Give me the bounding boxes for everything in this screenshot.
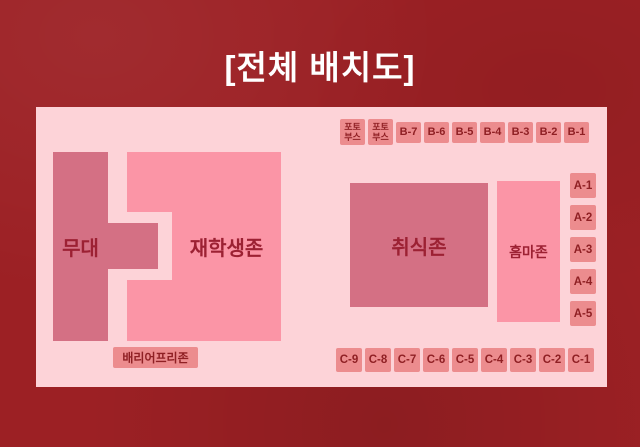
seat-a-3: A-3 bbox=[570, 237, 596, 262]
seat-c-1: C-1 bbox=[568, 348, 594, 372]
seat-b-5: B-5 bbox=[452, 122, 477, 143]
seat-c-4: C-4 bbox=[481, 348, 507, 372]
seat-b-4: B-4 bbox=[480, 122, 505, 143]
seat-a-4: A-4 bbox=[570, 269, 596, 294]
seat-b-2: B-2 bbox=[536, 122, 561, 143]
zone-homma: 홈마존 bbox=[497, 181, 560, 322]
a-seat-column: A-1 A-2 A-3 A-4 A-5 bbox=[570, 173, 596, 326]
photo-booth-1-label-top: 포토 bbox=[344, 122, 361, 132]
seat-a-1: A-1 bbox=[570, 173, 596, 198]
seat-b-3: B-3 bbox=[508, 122, 533, 143]
photo-booth-2: 포토 부스 bbox=[368, 119, 393, 145]
zone-students-label-wrap: 재학생존 bbox=[172, 152, 281, 341]
seat-b-1: B-1 bbox=[564, 122, 589, 143]
seat-c-7: C-7 bbox=[394, 348, 420, 372]
seat-b-6: B-6 bbox=[424, 122, 449, 143]
photo-booth-and-b-row: 포토 부스 포토 부스 B-7 B-6 B-5 B-4 B-3 B-2 B-1 bbox=[340, 119, 589, 145]
photo-booth-1: 포토 부스 bbox=[340, 119, 365, 145]
seat-c-2: C-2 bbox=[539, 348, 565, 372]
page-title: [전체 배치도] bbox=[0, 41, 640, 89]
photo-booth-2-label-top: 포토 bbox=[372, 122, 389, 132]
seat-c-5: C-5 bbox=[452, 348, 478, 372]
seat-c-9: C-9 bbox=[336, 348, 362, 372]
seat-a-2: A-2 bbox=[570, 205, 596, 230]
poster-background: [전체 배치도] 무대 재학생존 취식존 홈마존 배리어프리존 포토 부스 포토 bbox=[0, 0, 640, 447]
zone-barrier-free: 배리어프리존 bbox=[113, 347, 198, 368]
seat-c-8: C-8 bbox=[365, 348, 391, 372]
c-seat-row: C-9 C-8 C-7 C-6 C-5 C-4 C-3 C-2 C-1 bbox=[336, 348, 594, 372]
photo-booth-1-label-bottom: 부스 bbox=[344, 132, 361, 142]
zone-food: 취식존 bbox=[350, 183, 488, 307]
photo-booth-2-label-bottom: 부스 bbox=[372, 132, 389, 142]
zone-stage-label-wrap: 무대 bbox=[53, 152, 108, 341]
seat-c-3: C-3 bbox=[510, 348, 536, 372]
zone-food-label: 취식존 bbox=[391, 231, 446, 260]
seat-c-6: C-6 bbox=[423, 348, 449, 372]
zone-homma-label: 홈마존 bbox=[509, 242, 548, 262]
zone-stage-label: 무대 bbox=[62, 232, 99, 261]
venue-map-panel: 무대 재학생존 취식존 홈마존 배리어프리존 포토 부스 포토 부스 B-7 bbox=[36, 107, 607, 387]
zone-students-label: 재학생존 bbox=[190, 232, 264, 261]
seat-b-7: B-7 bbox=[396, 122, 421, 143]
seat-a-5: A-5 bbox=[570, 301, 596, 326]
